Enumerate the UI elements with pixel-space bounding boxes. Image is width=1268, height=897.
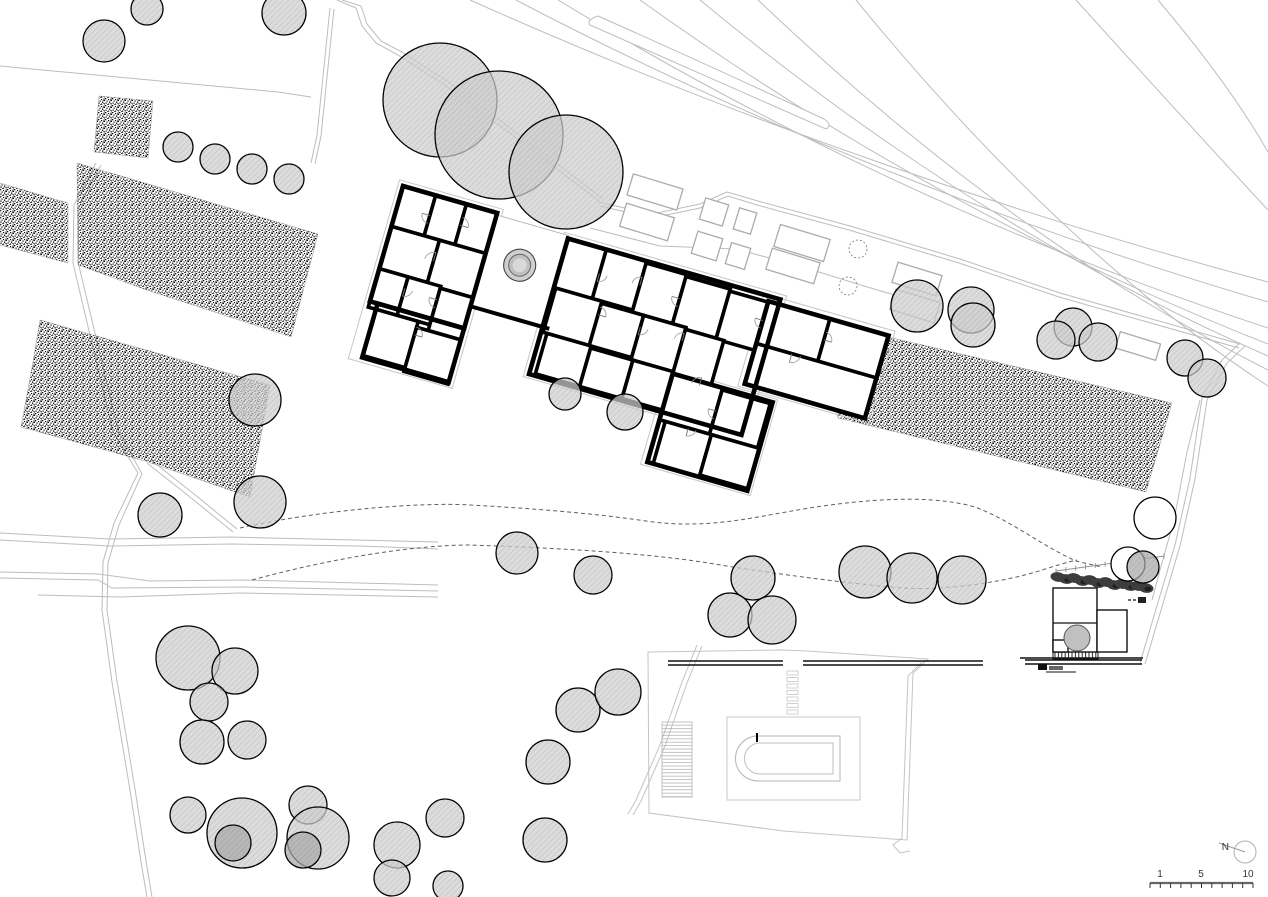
road-line [0,572,438,585]
tree-canopy-hatch [156,626,220,690]
garden-bed [1115,332,1160,361]
road-line [1158,0,1268,152]
garden-bed [733,208,757,234]
annex-room [1097,610,1127,652]
tree-canopy-hatch [163,132,193,162]
site-plan-drawing: 1510N [0,0,1268,897]
road-line [0,66,311,97]
tree-canopy-hatch [426,799,464,837]
tree-canopy-hatch [262,0,306,35]
north-label: N [1222,842,1229,853]
garden-step [787,671,798,675]
north-arrow: N [1219,841,1256,863]
hedge-clump-shadow [1145,587,1152,591]
garden-step [787,710,798,714]
gravel-area [94,96,153,158]
tree-canopy-hatch [285,832,321,868]
road-line [315,9,334,164]
tree-canopy-hatch [574,556,612,594]
garden-bed [627,174,683,210]
road-line [0,533,438,542]
tree-canopy-hatch [549,378,581,410]
garden-step [787,697,798,701]
tree-canopy-hatch [237,154,267,184]
tree-canopy-hatch [526,740,570,784]
gravel-area [0,183,68,263]
dashed-footpath [240,499,1102,567]
tree-canopy-hatch [1188,359,1226,397]
tree-canopy-hatch [228,721,266,759]
tree-canopy-hatch [200,144,230,174]
tree-canopy-solid [1064,625,1090,651]
tree-canopy-outline [1134,497,1176,539]
tree-canopy-hatch [891,280,943,332]
tree-canopy-hatch [607,394,643,430]
scale-bar: 1510 [1150,869,1254,888]
annex-equipment [1138,597,1146,603]
tree-canopy-hatch [556,688,600,732]
tree-canopy-hatch [595,669,641,715]
scale-bar-label: 5 [1198,869,1204,880]
garden-step [787,704,798,708]
tree-canopy-hatch [1037,321,1075,359]
main-building [343,180,898,522]
tree-canopy-hatch [509,115,623,229]
tree-canopy-hatch [374,860,410,896]
tree-canopy-hatch [748,596,796,644]
tree-canopy-hatch [523,818,567,862]
garden-step [787,678,798,682]
tree-canopy-hatch [274,164,304,194]
garden-step [787,691,798,695]
tree-canopy-hatch [951,303,995,347]
tree-canopy-hatch [887,553,937,603]
tree-canopy-hatch [234,476,286,528]
scale-bar-label: 1 [1157,869,1163,880]
garden-bed-circle [839,277,857,295]
tree-canopy-hatch [1079,323,1117,361]
tree-canopy-hatch [215,825,251,861]
tree-canopy-hatch [138,493,182,537]
tree-canopy-hatch [938,556,986,604]
tree-canopy-hatch [170,797,206,833]
garden-bed [691,231,723,261]
pool-ramp [662,722,692,797]
tree-canopy-hatch [496,532,538,574]
road-line [0,540,438,549]
scale-bar-label: 10 [1242,869,1254,880]
site-plan: 1510N [0,0,1268,897]
garden-bed [620,203,675,241]
garden-bed-circle [849,240,867,258]
pool-garden [628,645,1142,853]
tree-canopy-hatch [190,683,228,721]
annex-mark [1049,666,1063,670]
road-line [758,0,1268,370]
road-line [38,593,438,597]
annex-mark [1038,664,1047,670]
tree-canopy-hatch [731,556,775,600]
garden-bed [725,243,751,270]
tree-canopy-hatch [839,546,891,598]
garden-step [787,684,798,688]
tree-canopy-hatch [83,20,125,62]
tree-canopy-hatch [229,374,281,426]
tree-canopy-hatch [1127,551,1159,583]
pool-mark [756,733,758,742]
tree-canopy-hatch [708,593,752,637]
tree-canopy-hatch [180,720,224,764]
